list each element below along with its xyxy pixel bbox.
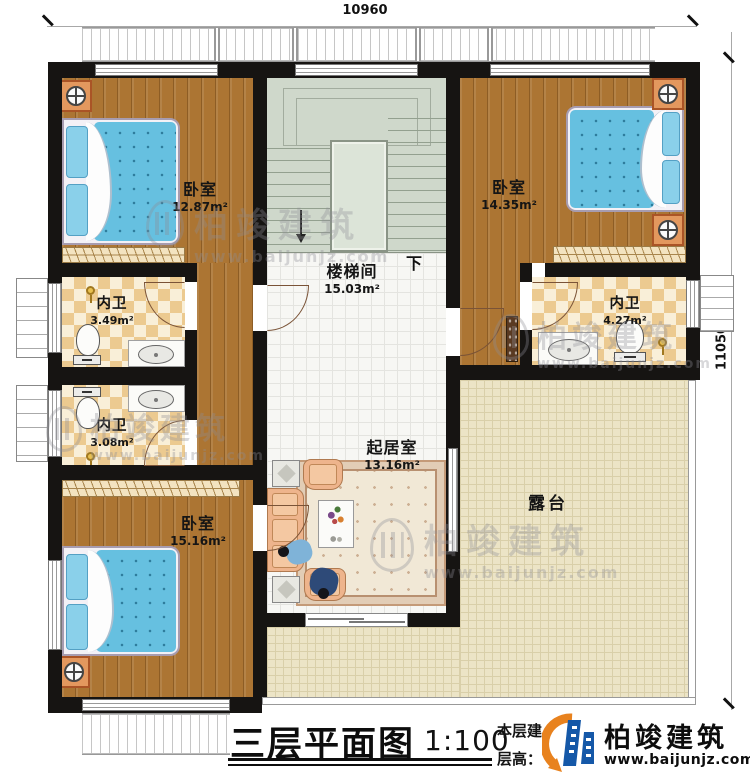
window-top-bedroom-right (490, 64, 650, 76)
lamp-icon (658, 220, 678, 240)
window-bath-left-upper (48, 283, 62, 353)
bay-window-left-upper (16, 278, 48, 358)
sliding-door-terrace (305, 613, 408, 627)
watermark-url: www.baijunjz.com (424, 563, 619, 582)
person-figure-head (318, 588, 329, 599)
room-name: 卧室 (150, 180, 250, 200)
wall-interior (253, 613, 305, 627)
coffee-table-icon (318, 500, 354, 548)
armchair-icon (303, 459, 343, 490)
dimension-top-label: 10960 (325, 3, 405, 18)
room-area: 14.35m² (459, 198, 559, 213)
eave-separator (292, 28, 298, 61)
room-label-bedroom-top-right: 卧室 14.35m² (459, 178, 559, 212)
room-area: 15.16m² (148, 534, 248, 549)
room-name: 卧室 (459, 178, 559, 198)
wall-interior (185, 466, 197, 480)
floor-drain-icon (86, 286, 95, 295)
terrace-railing-bottom (262, 697, 696, 705)
chair-cushion (309, 464, 337, 485)
room-name: 内卫 (62, 296, 162, 314)
stair-down-label: 下 (406, 250, 422, 274)
title-underline (228, 758, 492, 761)
watermark-logo-icon (493, 314, 529, 360)
lamp-icon (658, 84, 678, 104)
watermark-text: 柏竣建筑 (424, 514, 619, 563)
brand-url: www.baijunjz.com (604, 752, 750, 768)
room-label-bedroom-bottom-left: 卧室 15.16m² (148, 514, 248, 548)
info-floor-height: 层高： (497, 748, 542, 769)
watermark-url: www.baijunjz.com (194, 247, 389, 266)
watermark-logo-icon (146, 200, 184, 248)
window-top-bedroom-left (95, 64, 218, 76)
brand-name: 柏竣建筑 (604, 716, 728, 755)
watermark-text: 柏竣建筑 (194, 198, 389, 247)
terrace-floor-strip (267, 627, 460, 697)
window-top-stairwell (295, 64, 418, 76)
stair-treads-right (388, 118, 446, 252)
wall-interior (48, 367, 190, 385)
wardrobe-bedroom-bottom-left (62, 480, 240, 497)
room-label-terrace: 露台 (508, 494, 588, 515)
room-name: 卧室 (148, 514, 248, 534)
watermark-url: www.baijunjz.com (90, 448, 265, 464)
window-bottom-bedroom (82, 699, 230, 711)
dimension-line-right (731, 32, 732, 710)
watermark-text: 柏竣建筑 (537, 312, 712, 356)
lamp-icon (64, 662, 84, 682)
wall-interior (520, 263, 532, 282)
watermark-logo-icon (46, 406, 82, 452)
lamp-icon (66, 86, 86, 106)
watermark: 柏竣建筑 www.baijunjz.com (495, 312, 712, 372)
dimension-tick-icon (723, 51, 735, 63)
sink-icon (138, 345, 174, 364)
floor-plan-canvas: 10960 11050 (0, 0, 750, 782)
side-table-icon (272, 460, 300, 487)
pillow-icon (66, 604, 88, 650)
terrace-railing-right (688, 380, 696, 705)
watermark: 柏竣建筑 www.baijunjz.com (372, 514, 619, 582)
room-label-stairwell: 楼梯间 15.03m² (302, 262, 402, 296)
bay-window-left-lower (16, 385, 48, 462)
title-underline (228, 764, 492, 766)
wall-interior (408, 613, 460, 627)
pillow-icon (66, 184, 88, 236)
window-bedroom-bottom-left (48, 560, 62, 650)
pillow-icon (66, 126, 88, 178)
watermark-url: www.baijunjz.com (537, 356, 712, 372)
nightstand-icon (60, 80, 92, 112)
dimension-tick-icon (687, 14, 699, 26)
toilet-tank (73, 387, 101, 397)
nightstand-icon (58, 656, 90, 688)
pillow-icon (662, 112, 680, 156)
watermark-logo-icon (370, 518, 414, 572)
eave-separator (415, 28, 421, 61)
table-flowers (323, 504, 349, 529)
watermark-text: 柏竣建筑 (90, 404, 265, 448)
room-area: 3.49m² (62, 314, 162, 327)
watermark: 柏竣建筑 www.baijunjz.com (48, 404, 265, 464)
room-name: 起居室 (342, 438, 442, 458)
room-label-living: 起居室 13.16m² (342, 438, 442, 472)
wall-interior (446, 62, 460, 308)
brand-logo-icon (542, 710, 600, 774)
roof-eave-band-top (82, 27, 655, 62)
toilet-tank (73, 355, 101, 365)
side-table-icon (272, 576, 300, 603)
room-area: 15.03m² (302, 282, 402, 297)
watermark: 柏竣建筑 www.baijunjz.com (148, 198, 389, 266)
toilet-icon (76, 324, 100, 356)
room-label-bath-left-upper: 内卫 3.49m² (62, 296, 162, 327)
room-area: 13.16m² (342, 458, 442, 473)
eave-separator (487, 28, 493, 61)
nightstand-icon (652, 78, 684, 110)
wall-interior (48, 465, 253, 480)
table-decor (329, 535, 343, 543)
roof-eave-band-bottom (82, 713, 230, 755)
pillow-icon (66, 554, 88, 600)
wardrobe-bedroom-top-right (553, 246, 686, 263)
dimension-tick-icon (723, 697, 735, 709)
dimension-tick-icon (42, 14, 54, 26)
pillow-icon (662, 160, 680, 204)
room-name: 露台 (508, 494, 588, 515)
wall-interior (545, 263, 700, 277)
eave-separator (214, 28, 220, 61)
nightstand-icon (652, 214, 684, 246)
